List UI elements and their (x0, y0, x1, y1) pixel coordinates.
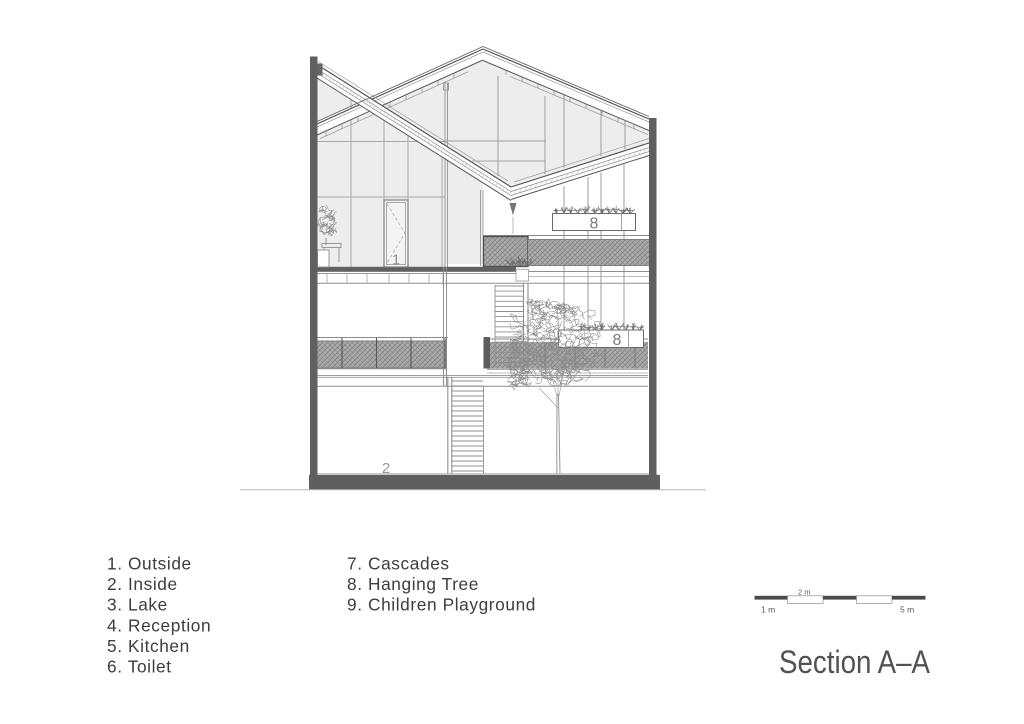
svg-text:Section A–A: Section A–A (779, 644, 931, 680)
svg-text:7. Cascades: 7. Cascades (347, 554, 450, 574)
svg-text:4. Reception: 4. Reception (107, 615, 211, 635)
svg-text:8: 8 (590, 216, 599, 233)
svg-text:1. Outside: 1. Outside (107, 554, 192, 574)
svg-text:1: 1 (392, 252, 400, 269)
svg-text:5 m: 5 m (900, 605, 914, 615)
svg-text:8. Hanging Tree: 8. Hanging Tree (347, 574, 479, 594)
svg-text:3. Lake: 3. Lake (107, 595, 168, 615)
svg-text:1 m: 1 m (761, 605, 775, 615)
svg-text:2. Inside: 2. Inside (107, 574, 178, 594)
svg-text:5. Kitchen: 5. Kitchen (107, 636, 190, 656)
svg-text:2 m: 2 m (798, 588, 811, 597)
svg-text:9. Children Playground: 9. Children Playground (347, 595, 536, 615)
svg-text:6. Toilet: 6. Toilet (107, 657, 172, 677)
svg-text:2: 2 (382, 460, 390, 477)
svg-text:8: 8 (613, 332, 622, 349)
